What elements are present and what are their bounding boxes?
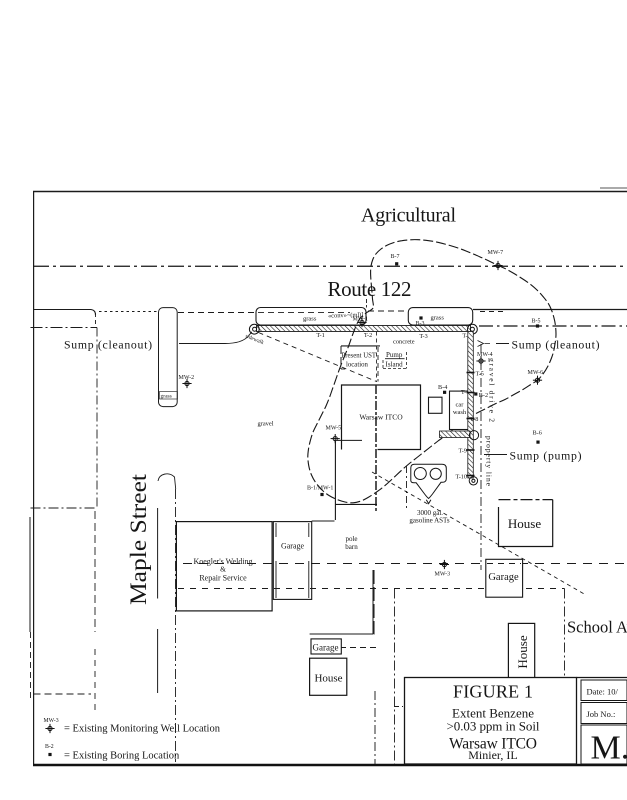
svg-text:House: House [314,673,342,685]
svg-text:Island: Island [386,361,404,369]
svg-text:Agricultural: Agricultural [361,205,456,227]
svg-text:T-1: T-1 [316,332,324,339]
svg-text:T-9: T-9 [459,448,467,455]
svg-text:location: location [346,362,368,369]
svg-text:Pump: Pump [386,351,403,359]
svg-text:= Existing Monitoring Well Loc: = Existing Monitoring Well Location [64,724,221,735]
svg-text:Present UST: Present UST [342,353,377,360]
svg-text:House: House [508,516,541,531]
svg-text:wash: wash [453,409,467,416]
svg-text:B-2: B-2 [45,744,54,750]
svg-text:B-2: B-2 [479,392,488,399]
svg-text:T-10: T-10 [456,474,467,481]
svg-text:Repair Service: Repair Service [199,574,247,583]
svg-text:T-3: T-3 [419,333,427,340]
svg-text:gasoline ASTs: gasoline ASTs [409,517,449,525]
svg-text:T-8: T-8 [470,416,478,423]
svg-text:B-3: B-3 [416,321,425,327]
svg-text:House: House [515,635,530,668]
svg-text:School Ave: School Ave [567,618,627,637]
svg-text:MW-3: MW-3 [435,572,451,578]
svg-text:Maple Street: Maple Street [126,473,152,605]
svg-text:MW-3: MW-3 [44,718,59,724]
svg-text:pole: pole [345,535,357,543]
svg-text:grass: grass [431,315,445,322]
svg-text:MW-6: MW-6 [528,370,544,376]
svg-text:&: & [220,565,226,574]
svg-text:FIGURE 1: FIGURE 1 [453,682,533,702]
svg-text:Garage: Garage [488,572,519,583]
svg-text:Date: 10/: Date: 10/ [587,687,619,697]
svg-text:concrete: concrete [393,339,415,346]
svg-text:B-6: B-6 [533,430,542,437]
svg-text:T-5: T-5 [476,371,484,378]
svg-text:>0.03 ppm in Soil: >0.03 ppm in Soil [447,719,540,734]
svg-text:B-7: B-7 [391,254,400,260]
svg-text:Sump (pump): Sump (pump) [510,449,582,463]
svg-text:= Existing Boring Location: = Existing Boring Location [64,751,180,762]
svg-text:MW-5: MW-5 [326,426,342,432]
svg-text:Garage: Garage [281,542,305,551]
svg-text:M.E: M.E [591,730,627,767]
svg-text:Route 122: Route 122 [328,277,412,301]
svg-text:T-2: T-2 [364,332,372,339]
svg-text:B-4: B-4 [438,384,447,391]
svg-text:Job No.:: Job No.: [587,709,616,719]
svg-text:B-5: B-5 [532,319,541,325]
svg-text:Garage: Garage [313,643,339,653]
svg-text:gravel: gravel [258,421,274,428]
svg-text:barn: barn [345,543,358,551]
svg-text:Warsaw ITCO: Warsaw ITCO [359,413,403,422]
svg-text:MW-2: MW-2 [179,375,195,381]
svg-text:T-: T- [461,390,466,396]
svg-text:property line: property line [485,436,494,487]
svg-text:MW-4: MW-4 [477,352,493,358]
svg-text:Sump (cleanout): Sump (cleanout) [64,338,152,352]
svg-text:MW-7: MW-7 [488,250,504,256]
svg-text:B-1/MW-1: B-1/MW-1 [307,486,333,492]
svg-text:grass: grass [161,394,172,400]
svg-text:Minier, IL: Minier, IL [468,748,518,762]
svg-text:gravel drive 2: gravel drive 2 [488,358,497,422]
svg-text:grass: grass [303,316,317,323]
svg-text:Sump (cleanout): Sump (cleanout) [512,338,600,352]
svg-text:car: car [456,402,465,409]
